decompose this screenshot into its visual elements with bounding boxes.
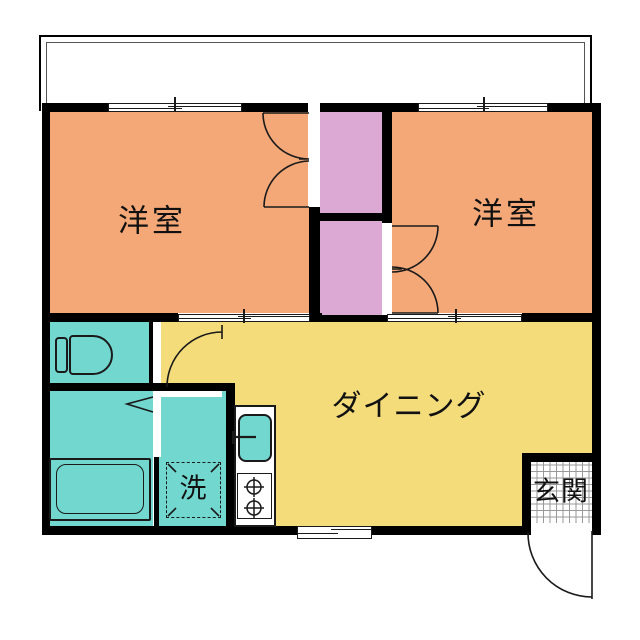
wall-top-3 — [320, 103, 418, 112]
closet-top — [320, 112, 382, 213]
toilet-door-opening — [153, 322, 161, 385]
closet-right-door-opening — [382, 223, 391, 316]
bathroom-door-opening — [153, 391, 161, 457]
window-bottom — [297, 526, 372, 539]
toilet-bowl-icon — [69, 335, 113, 375]
wall-top-2 — [242, 103, 308, 112]
toilet-tank-icon — [55, 337, 68, 373]
window-tick — [243, 309, 245, 323]
closet-left-door-opening — [308, 103, 320, 207]
wall-right — [592, 103, 601, 535]
balcony-inner-line — [46, 42, 585, 111]
window-tick — [455, 309, 457, 323]
wall-entrance-left — [522, 453, 531, 527]
bathtub-inner-line — [56, 464, 144, 514]
wall-bottom-mid — [372, 526, 531, 535]
entrance-threshold — [531, 523, 592, 535]
laundry-door-opening — [154, 391, 222, 397]
floor-plan: 洋室 洋室 ダイニング 洗 玄関 — [0, 0, 640, 640]
wall-top-1 — [42, 103, 108, 112]
closet-bottom — [320, 221, 382, 316]
wall-toilet-bottom — [42, 383, 235, 391]
wall-closet-left-lower — [309, 207, 320, 317]
room-label-entrance: 玄関 — [533, 479, 589, 506]
wall-bath-laundry — [154, 457, 159, 526]
kitchen-sink-icon — [238, 414, 272, 462]
wall-closet-right-upper — [382, 103, 392, 223]
stove-icon — [237, 473, 272, 519]
wall-entrance-top — [522, 453, 592, 462]
window-tick — [483, 97, 485, 112]
wall-mid-left — [42, 313, 178, 322]
room-label-bedroom-right: 洋室 — [472, 199, 540, 230]
room-label-bedroom-left: 洋室 — [118, 206, 186, 237]
room-label-dining: ダイニング — [332, 392, 487, 422]
window-tick — [174, 97, 176, 112]
wall-closet-divider — [309, 213, 392, 221]
door-swing-arc-entrance — [528, 531, 592, 599]
wall-mid-right — [522, 313, 592, 322]
wall-below-closet — [320, 315, 392, 322]
wall-bottom-left — [42, 526, 297, 535]
room-label-laundry: 洗 — [180, 476, 207, 503]
wall-toilet-right — [149, 322, 153, 385]
